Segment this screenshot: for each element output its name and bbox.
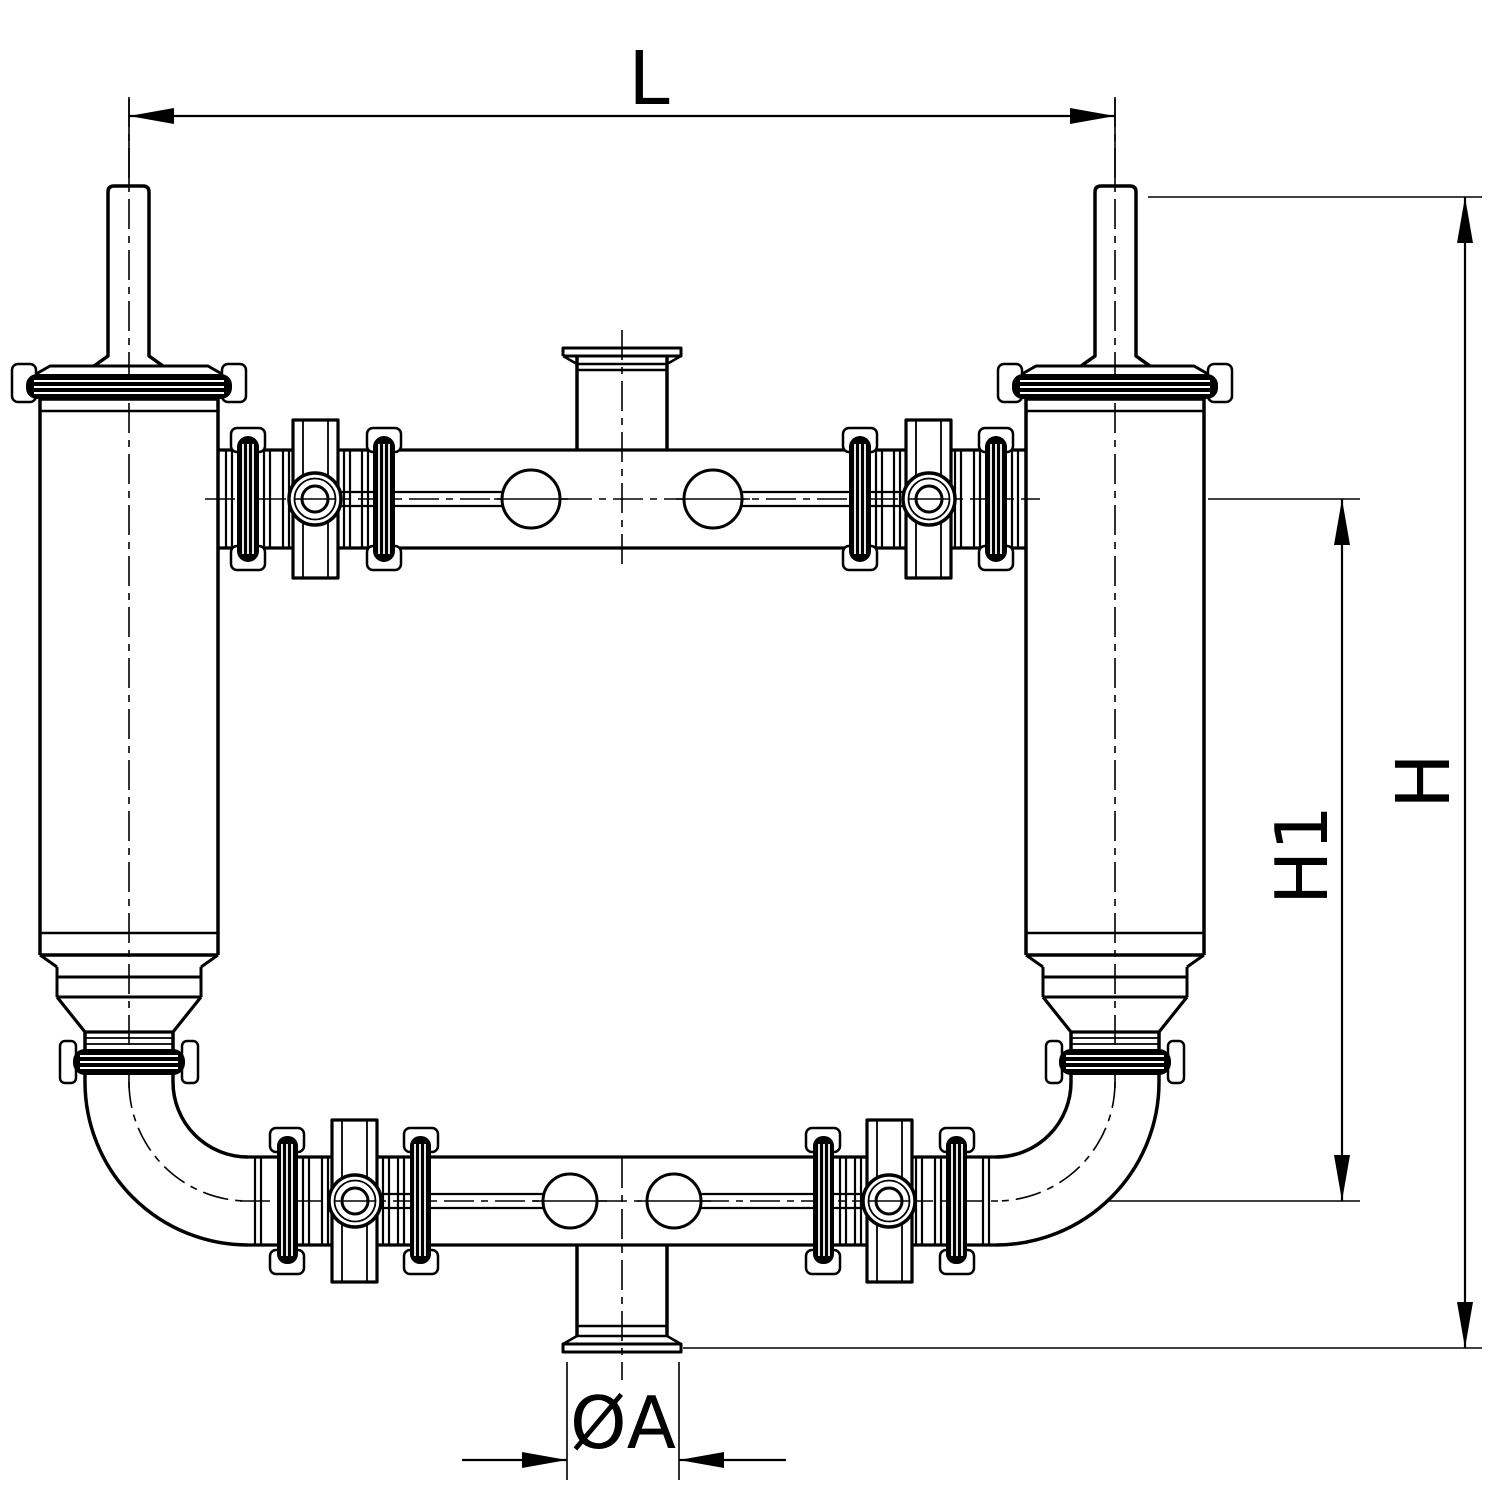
- diameter-arrow-right: [679, 1452, 724, 1468]
- port-diameter-dimension-label: ØA: [570, 1381, 676, 1465]
- left-assembly-half: [12, 186, 622, 1282]
- length-arrow-left: [129, 108, 174, 124]
- length-dimension-label: L: [628, 36, 669, 122]
- diameter-arrow-left: [522, 1452, 567, 1468]
- overall-height-arrow-top: [1457, 197, 1473, 243]
- manifold-height-arrow-bottom: [1334, 1155, 1350, 1201]
- overall-height-arrow-bottom: [1457, 1302, 1473, 1348]
- right-assembly-half-mirror: [622, 186, 1232, 1282]
- length-arrow-right: [1070, 108, 1115, 124]
- centerlines: [129, 97, 1115, 1380]
- technical-drawing-page: L H H1 ØA: [0, 0, 1512, 1512]
- overall-height-dimension-label: H: [1381, 753, 1467, 809]
- manifold-height-arrow-top: [1334, 499, 1350, 545]
- duplex-filter-assembly-drawing: L H H1 ØA: [0, 0, 1512, 1512]
- manifold-height-dimension-label: H1: [1260, 805, 1344, 905]
